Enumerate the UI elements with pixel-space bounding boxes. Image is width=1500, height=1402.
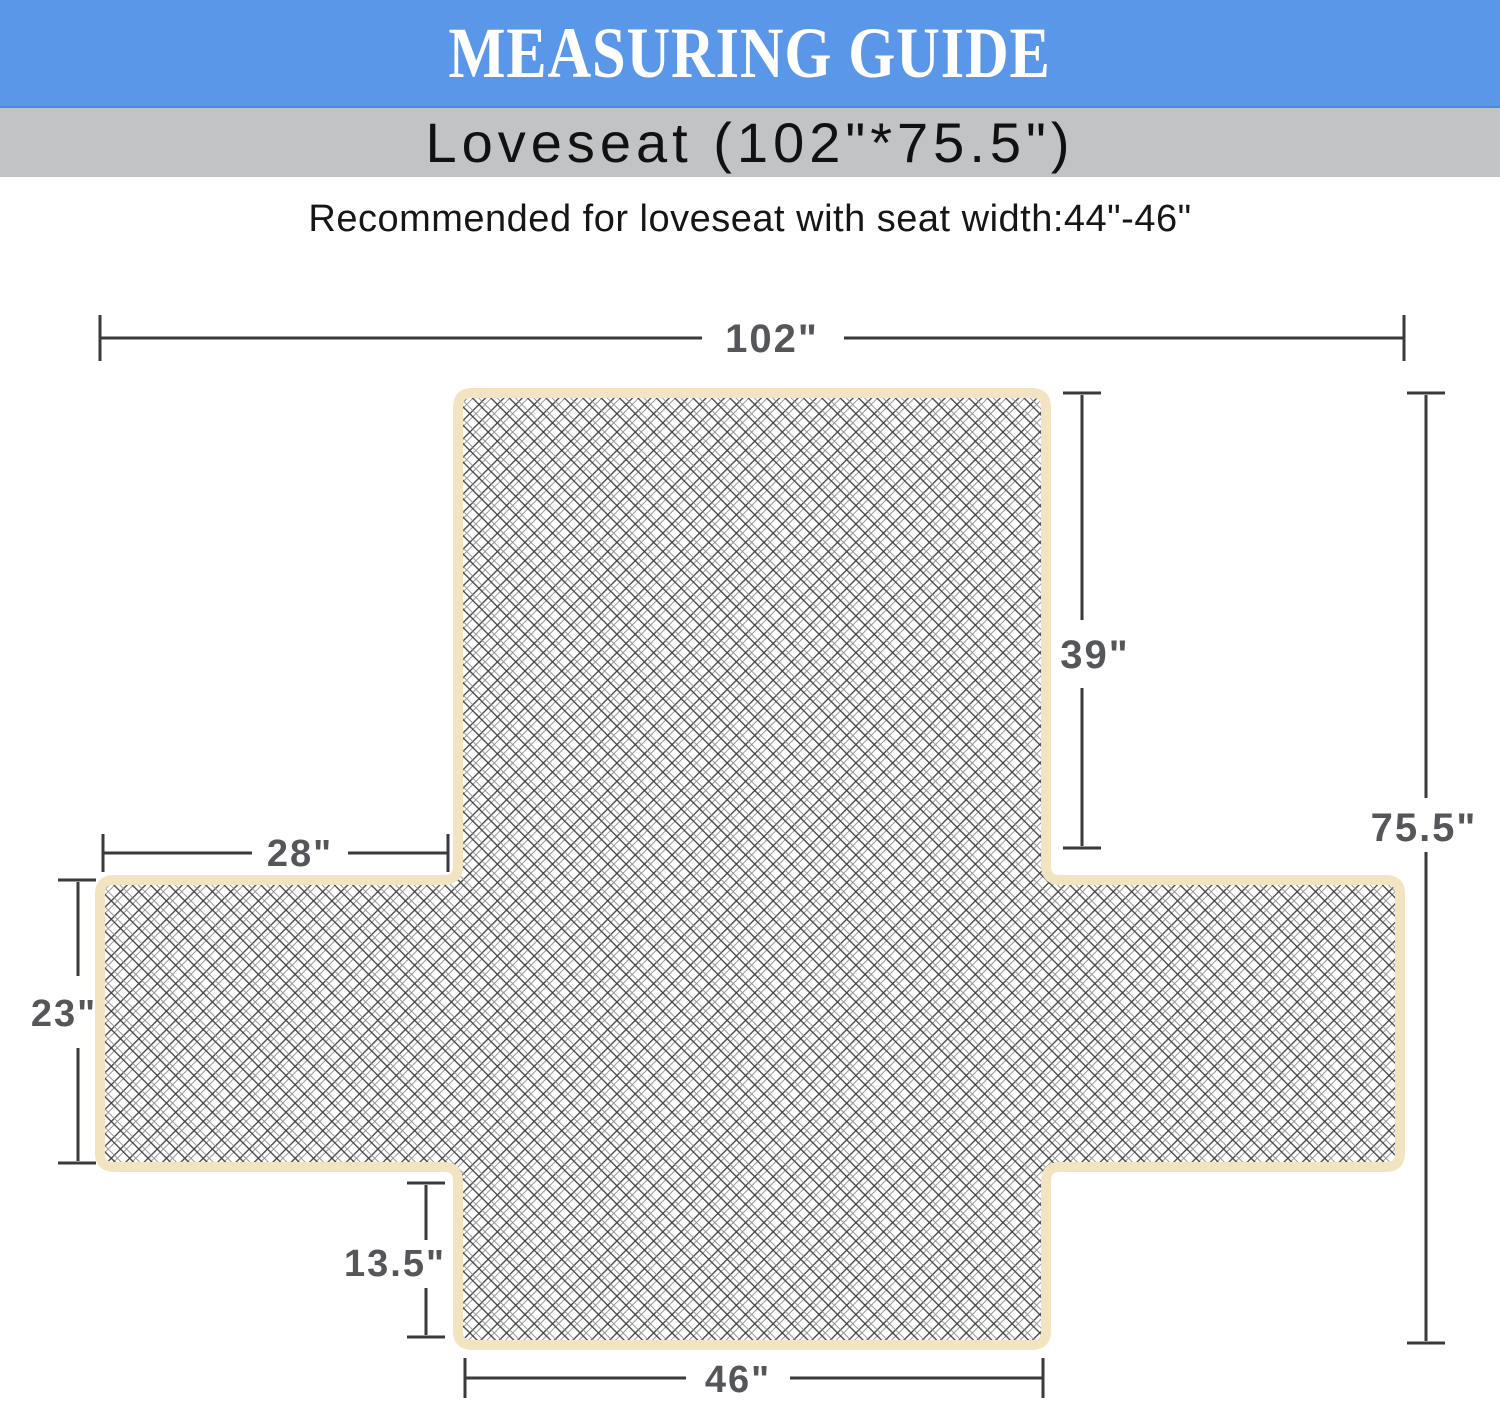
dimension-arm-width: 28" bbox=[103, 833, 448, 875]
dimension-overall-depth: 75.5" bbox=[1371, 393, 1478, 1343]
dimension-seat-width: 46" bbox=[465, 1358, 1043, 1401]
dimension-overall-depth-line bbox=[1407, 393, 1445, 1343]
loveseat-cover-diagram: 102" 39" 75.5" 28" 23" 13.5" bbox=[0, 0, 1500, 1402]
dimension-back-height: 39" bbox=[1060, 393, 1129, 848]
dimension-overall-width: 102" bbox=[100, 315, 1404, 361]
dimension-seat-width-label: 46" bbox=[705, 1359, 771, 1401]
dimension-arm-width-label: 28" bbox=[267, 833, 333, 875]
dimension-overall-width-label: 102" bbox=[725, 317, 819, 361]
measuring-guide-page: MEASURING GUIDE Loveseat (102"*75.5") Re… bbox=[0, 0, 1500, 1402]
dimension-front-skirt-label: 13.5" bbox=[344, 1243, 446, 1285]
dimension-front-skirt: 13.5" bbox=[344, 1183, 446, 1337]
dimension-arm-depth: 23" bbox=[31, 880, 97, 1163]
dimension-overall-depth-label: 75.5" bbox=[1371, 806, 1478, 850]
dimension-back-height-line bbox=[1063, 393, 1101, 848]
dimension-back-height-label: 39" bbox=[1060, 633, 1129, 677]
dimension-arm-depth-label: 23" bbox=[31, 993, 97, 1035]
